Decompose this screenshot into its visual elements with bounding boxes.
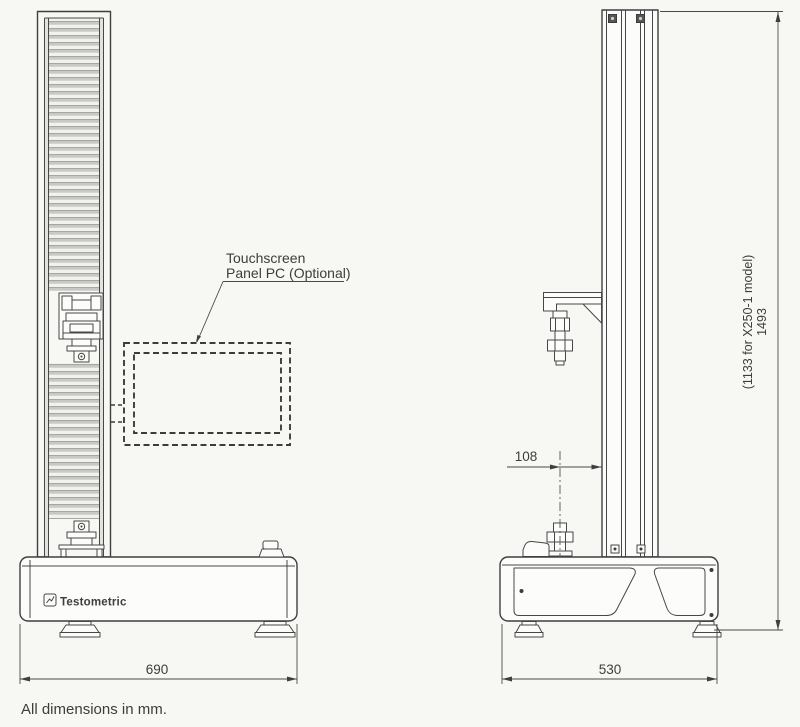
dim-1493-alt-note: (1133 for X250-1 model) (741, 255, 755, 390)
panel-screw (710, 613, 714, 617)
bellows-cover-lower (49, 363, 100, 519)
leader-arrow (196, 335, 201, 343)
front-column (38, 12, 111, 558)
grip-nut (548, 340, 573, 351)
foot (515, 622, 543, 638)
side-column (602, 10, 658, 557)
foot (255, 622, 295, 638)
technical-drawing-canvas: Testometric Touchscreen Panel PC (Opt (0, 0, 800, 727)
emergency-stop-knob (259, 541, 284, 557)
touchscreen-label-line1: Touchscreen (226, 250, 305, 266)
column-bolt (611, 545, 619, 553)
side-crosshead-arm (544, 293, 602, 366)
touchscreen-outline-outer (124, 343, 290, 445)
touchscreen-outline-inner (134, 353, 281, 433)
bellows-cover-upper (49, 18, 100, 293)
dim-530-value: 530 (599, 662, 622, 677)
lower-fixture-front (49, 519, 104, 557)
dim-108-value: 108 (515, 449, 538, 464)
units-note: All dimensions in mm. (21, 701, 167, 718)
foot (60, 622, 100, 638)
upper-grip-side (548, 311, 573, 365)
column-bolt (637, 545, 645, 553)
feet-side (515, 622, 721, 638)
front-view: Testometric (20, 12, 297, 638)
side-view (500, 10, 721, 637)
clamp-lever (523, 541, 549, 556)
machine-base-side (500, 557, 718, 621)
panel-screw (710, 568, 714, 572)
feet-front (60, 622, 295, 638)
lower-grip-side (523, 523, 573, 557)
arm-brace (583, 304, 602, 323)
crosshead-assembly (49, 291, 103, 363)
logo-text: Testometric (60, 597, 127, 609)
column-bolt (637, 15, 645, 23)
dimension-1493: 1493 (1133 for X250-1 model) (660, 12, 783, 631)
touchscreen-annotation: Touchscreen Panel PC (Optional) (111, 250, 351, 445)
panel-screw (520, 589, 524, 593)
column-bolt (609, 15, 617, 23)
touchscreen-label-line2: Panel PC (Optional) (226, 265, 351, 281)
dim-690-value: 690 (146, 662, 169, 677)
dim-1493-value: 1493 (755, 308, 769, 336)
dimensional-drawing: Testometric Touchscreen Panel PC (Opt (0, 0, 800, 727)
